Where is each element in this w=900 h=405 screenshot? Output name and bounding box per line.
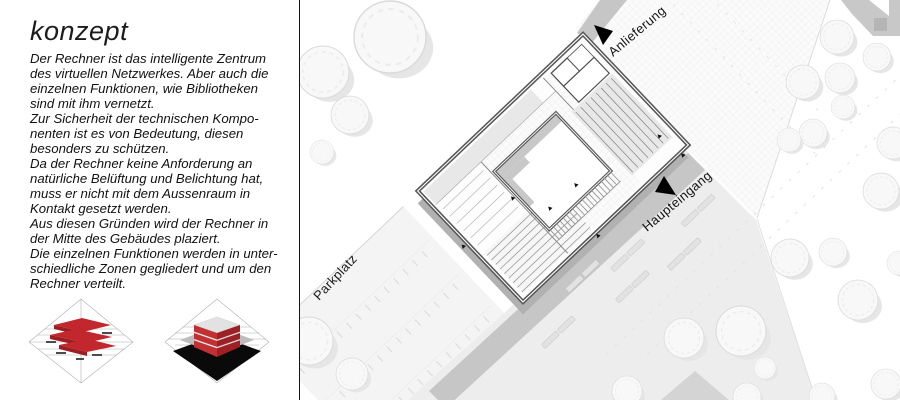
site-plan-svg: Anlieferung Haupteingang Parkplatz xyxy=(300,0,900,400)
site-plan: Anlieferung Haupteingang Parkplatz xyxy=(300,0,900,400)
concept-panel: konzept Der Rechner ist das intelligente… xyxy=(0,0,300,400)
red-zone-slabs xyxy=(50,318,116,356)
core-stack-diagram xyxy=(162,296,272,386)
zones-spiral-diagram xyxy=(26,296,136,386)
concept-diagrams xyxy=(0,292,299,392)
concept-paragraph: Der Rechner ist das intelligente Zentrum… xyxy=(30,51,288,291)
page-title: konzept xyxy=(30,16,299,47)
